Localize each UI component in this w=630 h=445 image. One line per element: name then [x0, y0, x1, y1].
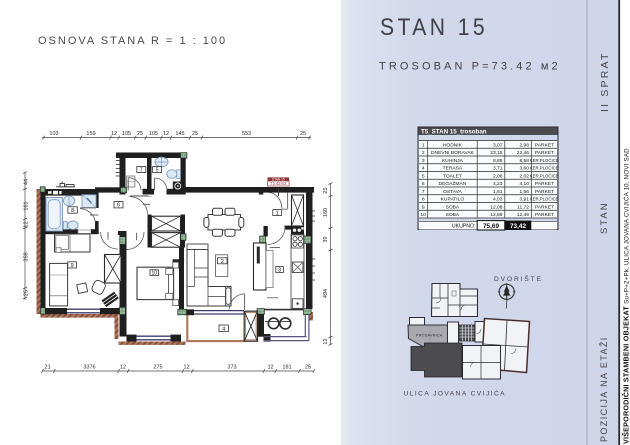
svg-text:TOALET: TOALET	[443, 173, 462, 179]
svg-text:PARKET: PARKET	[535, 212, 554, 218]
svg-text:HODNIK: HODNIK	[443, 142, 463, 148]
svg-text:4: 4	[422, 166, 425, 172]
svg-text:25: 25	[137, 131, 143, 137]
svg-text:7: 7	[422, 189, 425, 195]
svg-text:6: 6	[117, 203, 120, 209]
svg-text:105: 105	[122, 131, 131, 137]
svg-text:3,91: 3,91	[519, 197, 529, 203]
svg-text:12: 12	[120, 364, 126, 370]
svg-text:8: 8	[422, 197, 425, 203]
svg-text:181: 181	[282, 364, 291, 370]
svg-text:3,60: 3,60	[519, 166, 529, 172]
svg-text:PARKET: PARKET	[535, 150, 554, 156]
svg-text:2,02: 2,02	[519, 173, 529, 179]
svg-text:PARKET: PARKET	[535, 204, 554, 210]
svg-text:9: 9	[422, 204, 425, 210]
svg-text:STAN: STAN	[599, 201, 610, 234]
svg-text:105: 105	[149, 131, 158, 137]
svg-text:DNEVNI BORAVAK: DNEVNI BORAVAK	[431, 150, 474, 156]
svg-text:12: 12	[24, 221, 30, 227]
svg-text:11,72: 11,72	[517, 204, 529, 210]
svg-text:12: 12	[323, 338, 329, 344]
svg-text:73,42: 73,42	[510, 223, 526, 230]
svg-text:1: 1	[422, 142, 425, 148]
svg-text:DVORIŠTE: DVORIŠTE	[494, 274, 543, 283]
svg-text:12,08: 12,08	[490, 204, 503, 210]
svg-text:KER.PLOČICE: KER.PLOČICE	[530, 158, 559, 163]
svg-text:25: 25	[305, 364, 311, 370]
svg-text:373: 373	[227, 364, 236, 370]
svg-text:23,15: 23,15	[490, 150, 503, 156]
svg-text:2,08: 2,08	[493, 173, 503, 179]
svg-text:2,98: 2,98	[519, 142, 529, 148]
svg-text:2: 2	[221, 259, 224, 265]
svg-text:9: 9	[71, 263, 74, 269]
svg-text:75,69: 75,69	[483, 223, 499, 230]
svg-text:8: 8	[71, 208, 74, 214]
svg-text:3,71: 3,71	[493, 166, 503, 172]
svg-text:VIŠEPORODIČNI STAMBENI OBJEKAT: VIŠEPORODIČNI STAMBENI OBJEKAT Su+P+2+Pk…	[622, 148, 630, 444]
svg-text:12: 12	[267, 364, 273, 370]
svg-text:KUHINJA: KUHINJA	[442, 158, 464, 164]
svg-text:POZICIJA NA ETAŽI: POZICIJA NA ETAŽI	[599, 336, 609, 442]
svg-text:73.42m2: 73.42m2	[270, 181, 287, 186]
svg-text:1: 1	[276, 211, 279, 217]
svg-text:25: 25	[323, 188, 329, 194]
svg-text:22,46: 22,46	[517, 150, 530, 156]
svg-text:160: 160	[323, 208, 329, 217]
svg-text:1,61: 1,61	[493, 189, 503, 195]
svg-text:12: 12	[111, 131, 117, 137]
svg-text:161: 161	[24, 201, 30, 210]
svg-text:10: 10	[152, 271, 158, 277]
svg-text:553: 553	[242, 131, 251, 137]
svg-text:1,56: 1,56	[519, 189, 529, 195]
svg-text:25: 25	[300, 131, 306, 137]
svg-text:25: 25	[192, 131, 198, 137]
svg-text:358: 358	[24, 252, 30, 261]
svg-text:3376: 3376	[83, 364, 95, 370]
svg-text:II SPRAT: II SPRAT	[599, 51, 611, 112]
svg-text:3: 3	[422, 158, 425, 164]
svg-text:KUPATILO: KUPATILO	[441, 197, 465, 203]
svg-text:12,49: 12,49	[517, 212, 530, 218]
svg-text:STAN 15: STAN 15	[380, 14, 488, 41]
svg-text:PARKET: PARKET	[535, 189, 554, 195]
svg-text:25: 25	[24, 290, 30, 296]
svg-text:39: 39	[323, 236, 329, 242]
svg-text:KER.PLOČICE: KER.PLOČICE	[530, 166, 559, 171]
svg-text:SOBA: SOBA	[446, 204, 460, 210]
svg-text:KER.PLOČICE: KER.PLOČICE	[530, 197, 559, 202]
svg-text:UKUPNO:: UKUPNO:	[452, 224, 476, 230]
svg-text:OSTAVA: OSTAVA	[443, 189, 462, 195]
svg-text:159: 159	[86, 131, 95, 137]
svg-text:5: 5	[422, 173, 425, 179]
svg-text:4,23: 4,23	[493, 181, 503, 187]
svg-text:TERASA: TERASA	[443, 166, 463, 172]
svg-text:PARKET: PARKET	[535, 142, 554, 148]
svg-text:3,07: 3,07	[493, 142, 503, 148]
svg-text:44: 44	[24, 179, 30, 185]
svg-text:OSNOVA STANA R = 1 : 100: OSNOVA STANA R = 1 : 100	[38, 35, 227, 47]
svg-text:4: 4	[222, 326, 225, 332]
svg-text:12: 12	[183, 364, 189, 370]
svg-text:5: 5	[156, 168, 159, 174]
svg-text:145: 145	[175, 131, 184, 137]
svg-text:2: 2	[422, 150, 425, 156]
svg-text:PRODAVNICA: PRODAVNICA	[416, 334, 443, 338]
svg-text:SOBA: SOBA	[446, 212, 460, 218]
svg-text:10: 10	[420, 212, 426, 218]
svg-text:T5_STAN 15_trosoban: T5_STAN 15_trosoban	[421, 128, 487, 135]
svg-text:8,85: 8,85	[493, 158, 503, 164]
svg-text:21: 21	[45, 364, 51, 370]
svg-text:12: 12	[163, 131, 169, 137]
svg-text:494: 494	[323, 289, 329, 298]
svg-text:PARKET: PARKET	[535, 181, 554, 187]
svg-text:4,03: 4,03	[493, 197, 503, 203]
svg-text:8,58: 8,58	[519, 158, 529, 164]
svg-text:TROSOBAN P=73.42 м2: TROSOBAN P=73.42 м2	[379, 61, 561, 73]
svg-text:12,88: 12,88	[490, 212, 503, 218]
svg-text:7: 7	[140, 168, 143, 174]
svg-text:275: 275	[153, 364, 162, 370]
svg-text:4,10: 4,10	[519, 181, 529, 187]
svg-text:6: 6	[422, 181, 425, 187]
svg-text:KER.PLOČICE: KER.PLOČICE	[530, 173, 559, 178]
svg-text:ULICA JOVANA CVIJIĆA: ULICA JOVANA CVIJIĆA	[404, 389, 507, 398]
svg-text:103: 103	[49, 131, 58, 137]
svg-text:3: 3	[278, 268, 281, 274]
